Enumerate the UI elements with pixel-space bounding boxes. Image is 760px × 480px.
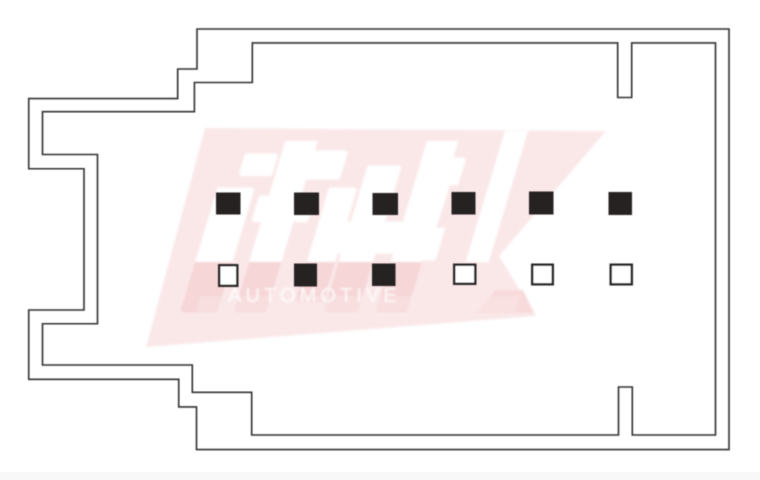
svg-text:AUTOMOTIVE: AUTOMOTIVE (228, 285, 401, 307)
